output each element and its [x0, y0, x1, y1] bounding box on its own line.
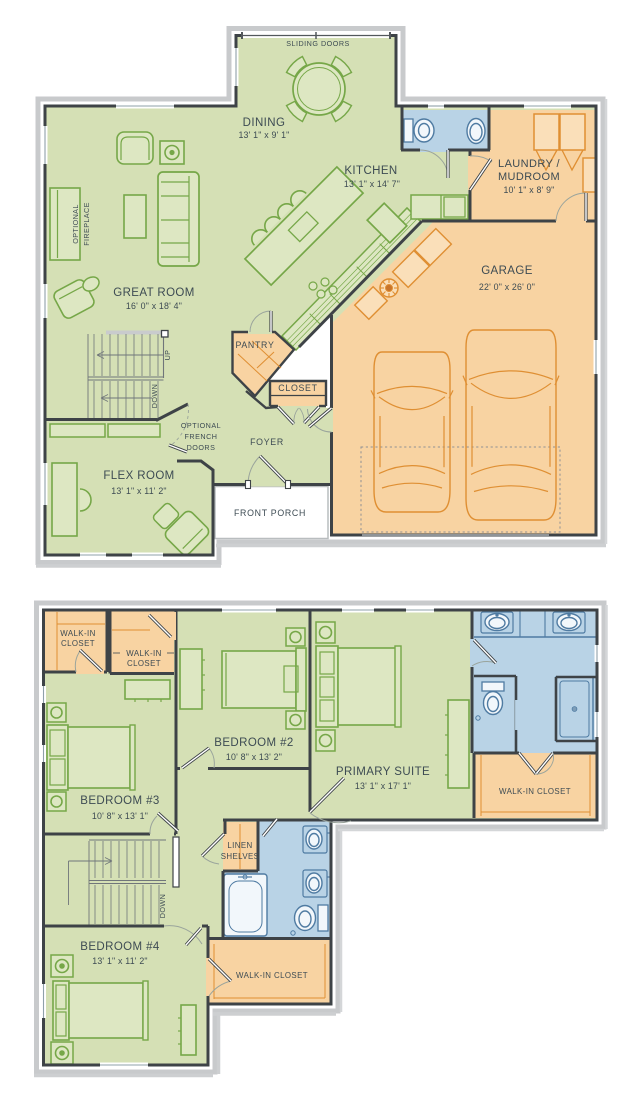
- svg-text:10' 8" x 13' 2": 10' 8" x 13' 2": [226, 752, 282, 762]
- svg-text:UP: UP: [163, 350, 172, 361]
- svg-text:DINING: DINING: [243, 117, 286, 129]
- svg-text:FLEX ROOM: FLEX ROOM: [103, 470, 174, 482]
- svg-text:OPTIONAL: OPTIONAL: [181, 421, 221, 430]
- svg-text:LINEN: LINEN: [227, 841, 252, 850]
- svg-text:LAUNDRY /: LAUNDRY /: [498, 158, 560, 170]
- svg-text:13' 1" x 9' 1": 13' 1" x 9' 1": [238, 130, 289, 140]
- svg-text:SHELVES: SHELVES: [221, 852, 260, 861]
- svg-text:10' 8" x 13' 1": 10' 8" x 13' 1": [92, 811, 148, 821]
- svg-text:WALK-IN: WALK-IN: [126, 649, 161, 658]
- svg-text:CLOSET: CLOSET: [61, 639, 95, 648]
- svg-text:FOYER: FOYER: [250, 437, 284, 447]
- svg-text:PRIMARY SUITE: PRIMARY SUITE: [336, 766, 430, 778]
- svg-text:MUDROOM: MUDROOM: [498, 171, 560, 183]
- svg-text:WALK-IN CLOSET: WALK-IN CLOSET: [236, 971, 308, 980]
- svg-text:13' 1" x 17' 1": 13' 1" x 17' 1": [355, 781, 411, 791]
- svg-text:DOWN: DOWN: [158, 894, 167, 918]
- svg-text:13' 1" x 11' 2": 13' 1" x 11' 2": [92, 956, 147, 966]
- svg-text:GARAGE: GARAGE: [481, 265, 533, 277]
- svg-text:CLOSET: CLOSET: [278, 383, 317, 393]
- svg-text:DOWN: DOWN: [150, 384, 159, 408]
- svg-text:FRENCH: FRENCH: [185, 432, 218, 441]
- svg-text:DOORS: DOORS: [187, 443, 216, 452]
- svg-text:BEDROOM #3: BEDROOM #3: [80, 795, 159, 807]
- svg-text:10' 1" x 8' 9": 10' 1" x 8' 9": [503, 185, 554, 195]
- svg-text:22' 0" x 26' 0": 22' 0" x 26' 0": [479, 282, 535, 292]
- svg-text:OPTIONAL: OPTIONAL: [71, 204, 80, 244]
- svg-text:BEDROOM #2: BEDROOM #2: [214, 737, 293, 749]
- svg-text:BEDROOM #4: BEDROOM #4: [80, 941, 160, 953]
- svg-text:16' 0" x 18' 4": 16' 0" x 18' 4": [126, 301, 182, 311]
- svg-text:CLOSET: CLOSET: [127, 659, 161, 668]
- svg-text:KITCHEN: KITCHEN: [344, 165, 397, 177]
- svg-text:GREAT ROOM: GREAT ROOM: [113, 287, 195, 299]
- svg-text:WALK-IN CLOSET: WALK-IN CLOSET: [499, 787, 571, 796]
- svg-text:WALK-IN: WALK-IN: [60, 629, 95, 638]
- svg-text:FRONT PORCH: FRONT PORCH: [234, 508, 306, 518]
- svg-text:FIREPLACE: FIREPLACE: [82, 202, 91, 246]
- svg-text:13' 1" x 14' 7": 13' 1" x 14' 7": [344, 179, 400, 189]
- svg-text:PANTRY: PANTRY: [235, 340, 274, 350]
- svg-text:SLIDING DOORS: SLIDING DOORS: [286, 39, 350, 48]
- svg-text:13' 1" x 11' 2": 13' 1" x 11' 2": [111, 486, 166, 496]
